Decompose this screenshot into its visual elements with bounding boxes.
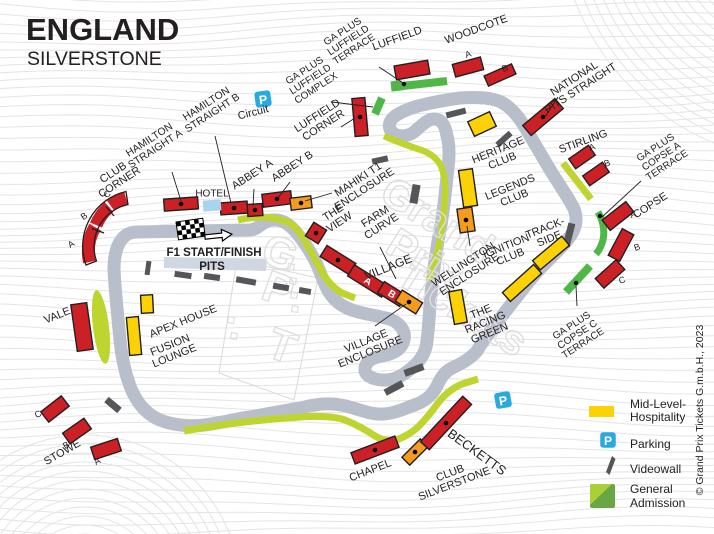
svg-text:Parking: Parking	[630, 437, 671, 451]
svg-text:© Grand Prix Tickets G.m.b.H.,: © Grand Prix Tickets G.m.b.H., 2023	[694, 325, 706, 496]
svg-text:HOTEL: HOTEL	[195, 189, 229, 200]
svg-text:Hospitality: Hospitality	[630, 410, 685, 424]
svg-text:General: General	[630, 482, 673, 496]
svg-text:P: P	[604, 434, 612, 448]
svg-text:F1 START/FINISH: F1 START/FINISH	[167, 247, 262, 259]
svg-text:Videowall: Videowall	[630, 462, 681, 476]
svg-text:PITS: PITS	[199, 261, 225, 273]
svg-text:Mid-Level-: Mid-Level-	[630, 397, 686, 411]
svg-text:ENGLAND: ENGLAND	[26, 12, 179, 47]
svg-text:Admission: Admission	[630, 496, 685, 510]
svg-text:SILVERSTONE: SILVERSTONE	[27, 48, 162, 70]
